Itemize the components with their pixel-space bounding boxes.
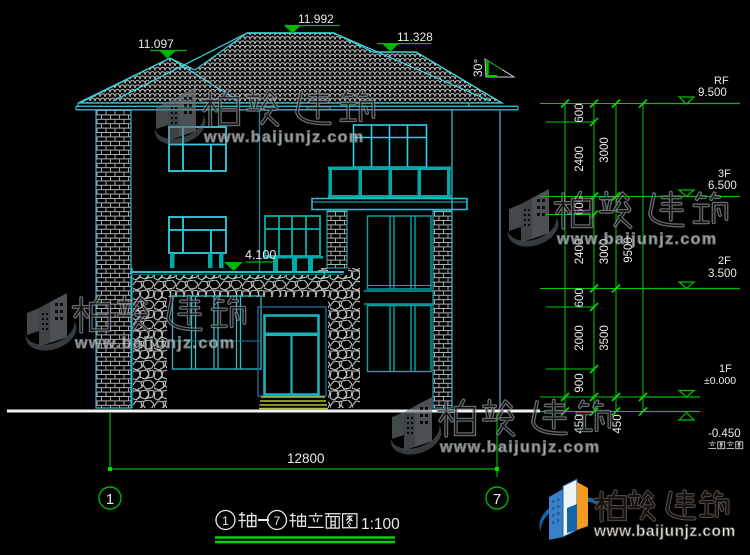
svg-text:RF: RF: [714, 75, 729, 87]
svg-text:3F: 3F: [718, 168, 731, 180]
svg-text:-0.450: -0.450: [708, 428, 741, 440]
svg-text:6.500: 6.500: [708, 180, 737, 192]
svg-text:4.100: 4.100: [245, 248, 276, 262]
svg-text:12800: 12800: [287, 451, 325, 466]
svg-text:600: 600: [574, 288, 586, 307]
svg-text:1:100: 1:100: [361, 516, 400, 533]
svg-text:2000: 2000: [574, 325, 586, 351]
svg-text:1F: 1F: [719, 363, 732, 375]
svg-text:3.500: 3.500: [708, 268, 737, 280]
svg-text:900: 900: [574, 373, 586, 392]
svg-text:600: 600: [574, 103, 586, 122]
svg-text:9.500: 9.500: [698, 87, 727, 99]
svg-text:7: 7: [274, 514, 281, 528]
svg-text:450: 450: [612, 414, 624, 433]
svg-text:30°: 30°: [471, 59, 485, 77]
svg-text:2400: 2400: [574, 146, 586, 172]
svg-text:11.992: 11.992: [298, 12, 334, 26]
svg-text:7: 7: [493, 491, 501, 508]
svg-text:1: 1: [222, 514, 229, 528]
svg-text:2F: 2F: [718, 255, 731, 267]
svg-text:3500: 3500: [599, 325, 611, 351]
svg-text:1: 1: [106, 491, 114, 508]
svg-text:www.baijunjz.com: www.baijunjz.com: [593, 523, 736, 540]
svg-text:11.097: 11.097: [138, 37, 174, 51]
svg-text:3000: 3000: [599, 137, 611, 163]
svg-text:11.328: 11.328: [397, 30, 433, 44]
svg-text:±0.000: ±0.000: [704, 375, 736, 387]
